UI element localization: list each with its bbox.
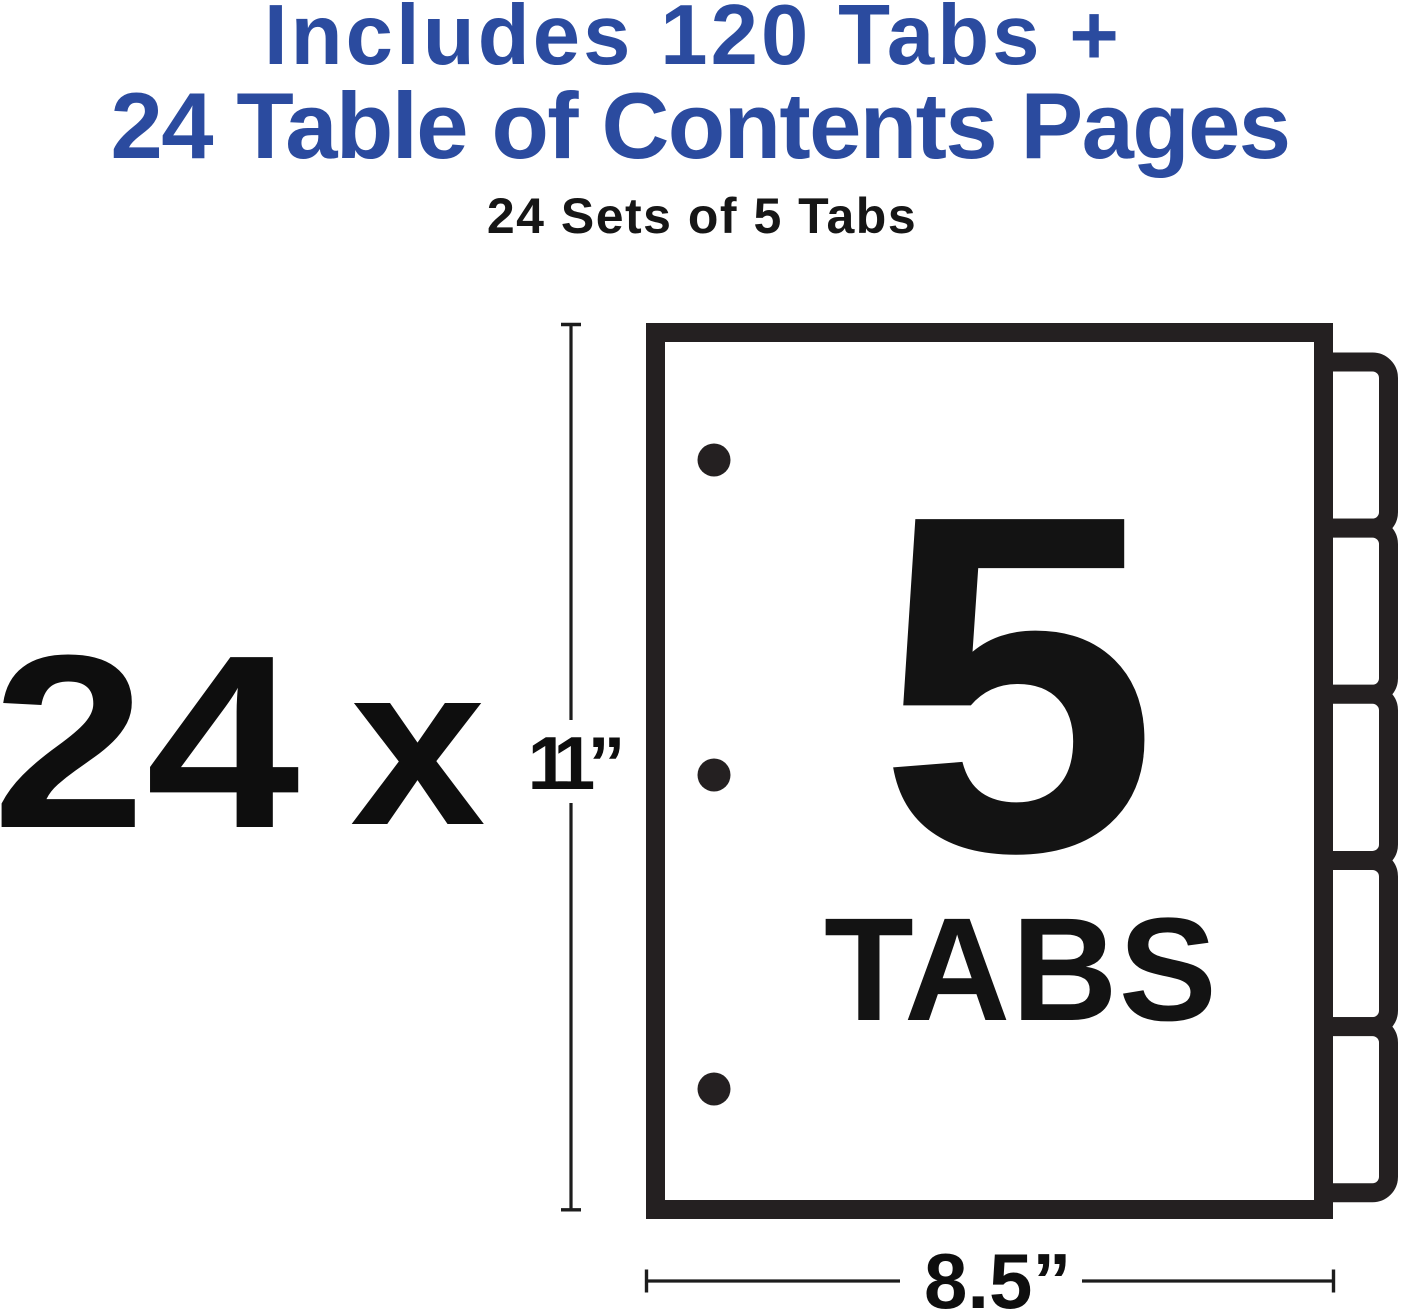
svg-text:24 Table of Contents Pages: 24 Table of Contents Pages [111, 73, 1290, 178]
svg-text:24: 24 [0, 604, 301, 880]
svg-text:Includes 120 Tabs +: Includes 120 Tabs + [264, 0, 1122, 83]
svg-text:5: 5 [878, 415, 1159, 952]
svg-text:TABS: TABS [824, 888, 1218, 1052]
svg-text:x: x [350, 618, 486, 874]
svg-text:8.5”: 8.5” [924, 1237, 1071, 1310]
svg-text:”: ” [588, 721, 626, 805]
svg-text:24 Sets of 5 Tabs: 24 Sets of 5 Tabs [487, 188, 917, 244]
